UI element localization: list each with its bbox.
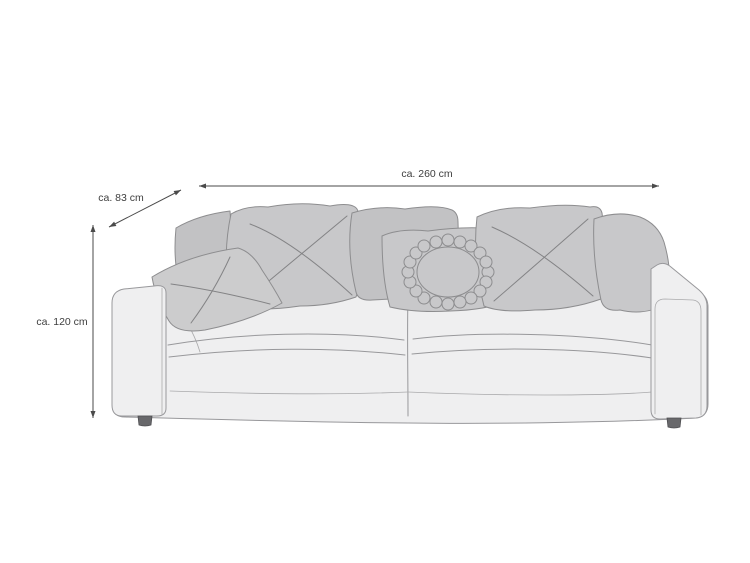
width-arrow-left [199,184,206,189]
left-foot [138,416,152,426]
depth-dimension: ca. 83 cm [98,190,181,227]
width-arrow-right [652,184,659,189]
depth-label: ca. 83 cm [98,192,144,204]
sofa-illustration: ca. 260 cm ca. 83 cm ca. 120 cm [0,0,750,563]
depth-arrow-lower [109,222,116,227]
height-dimension: ca. 120 cm [36,225,95,418]
height-arrow-top [91,225,96,232]
right-armrest [651,263,707,419]
wreath-center-disc [417,247,479,297]
width-dimension: ca. 260 cm [199,168,659,189]
sofa-drawing [112,204,708,428]
left-armrest [112,286,166,416]
right-foot [667,418,681,428]
height-label: ca. 120 cm [36,316,88,328]
depth-arrow-upper [174,190,181,195]
width-label: ca. 260 cm [401,168,453,180]
height-arrow-bottom [91,411,96,418]
sofa-dimension-diagram: ca. 260 cm ca. 83 cm ca. 120 cm [0,0,750,563]
